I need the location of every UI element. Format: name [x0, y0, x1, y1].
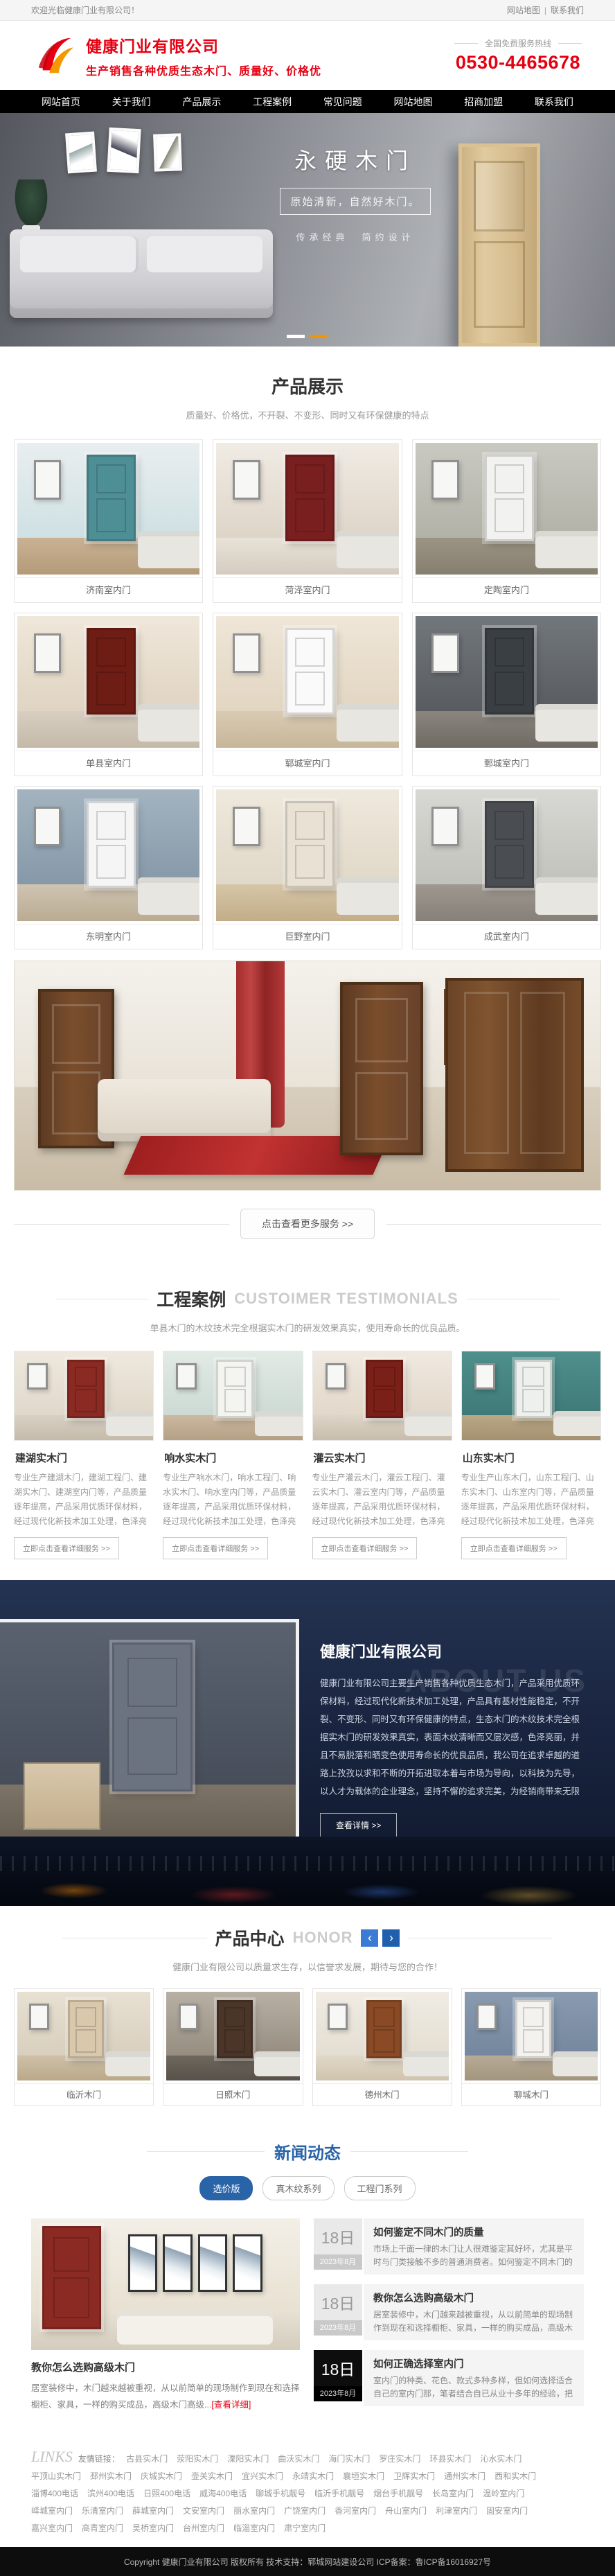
contact-link[interactable]: 联系我们: [551, 6, 584, 15]
product-name: 鄄城室内门: [413, 751, 600, 776]
news-body: 如何正确选择室内门 室内门的种类、花色、款式多种多样，但如何选择适合自己的室内门…: [364, 2350, 584, 2406]
copyright-bar: Copyright 健康门业有限公司 版权所有 技术支持：郓城网站建设公司 IC…: [0, 2547, 615, 2576]
door-graphic: [87, 628, 136, 715]
friend-link[interactable]: 邳州实木门: [90, 2471, 132, 2481]
wall-art-decor: [27, 1363, 48, 1390]
plant-decor: [12, 179, 50, 231]
case-description: 专业生产灌云木门，灌云工程门、灌云实木门、灌云室内门等，产品质量逐年提高，产品采…: [312, 1471, 452, 1529]
sofa-graphic: [337, 531, 399, 568]
case-image: [312, 1351, 452, 1441]
door-graphic: [68, 2000, 104, 2058]
door-graphic: [285, 801, 335, 888]
view-more-button[interactable]: 点击查看更多服务 >>: [240, 1209, 375, 1239]
sofa-graphic: [553, 2051, 598, 2076]
carousel-arrows: ‹ ›: [361, 1929, 400, 1947]
wall-art-decor: [163, 2234, 193, 2293]
wall-art-decor: [65, 132, 97, 174]
door-graphic: [42, 2226, 101, 2329]
news-content: 教你怎么选购高级木门 居室装修中，木门越来越被重视，从以前简单的现场制作到现在和…: [31, 2218, 584, 2413]
wall-art-decor: [128, 2234, 158, 2293]
featured-news[interactable]: 教你怎么选购高级木门 居室装修中，木门越来越被重视，从以前简单的现场制作到现在和…: [31, 2218, 300, 2413]
nav-item[interactable]: 联系我们: [535, 95, 573, 109]
case-grid: 建湖实木门 专业生产建湖木门，建湖工程门、建湖实木门、建湖室内门等，产品质量逐年…: [14, 1351, 601, 1559]
case-detail-button[interactable]: 立即点击查看详细服务 >>: [312, 1537, 418, 1559]
sofa-graphic: [254, 2051, 299, 2076]
nav-item[interactable]: 网站地图: [394, 95, 433, 109]
product-image: [416, 616, 598, 748]
news-month: 2023年8月: [314, 2386, 362, 2401]
friend-link[interactable]: 庆城实木门: [141, 2471, 182, 2481]
product-image: [17, 1992, 150, 2080]
friend-link[interactable]: 古县实木门: [126, 2454, 168, 2464]
news-tab-active[interactable]: 选价版: [199, 2176, 253, 2200]
product-image: [416, 443, 598, 575]
product-image: [17, 443, 199, 575]
door-graphic: [485, 801, 534, 888]
door-graphic: [216, 1360, 253, 1418]
carousel-prev-button[interactable]: ‹: [361, 1929, 378, 1947]
logo: 健康门业有限公司 生产销售各种优质生态木门、质量好、价格优: [33, 33, 321, 78]
sofa-graphic: [403, 2051, 448, 2076]
case-title: 灌云实木门: [314, 1451, 451, 1465]
banner-dot[interactable]: [287, 335, 305, 338]
hotline-label: 全国免费服务热线: [454, 37, 582, 49]
company-slogan: 生产销售各种优质生态木门、质量好、价格优: [86, 62, 321, 78]
news-item-title[interactable]: 教你怎么选购高级木门: [373, 2290, 574, 2305]
wall-art-decor: [474, 1363, 495, 1390]
nav-item[interactable]: 常见问题: [323, 95, 362, 109]
nav-item[interactable]: 招商加盟: [464, 95, 503, 109]
honor-title: 产品中心: [215, 1925, 285, 1950]
about-title: 健康门业有限公司: [320, 1640, 586, 1662]
company-name: 健康门业有限公司: [86, 33, 321, 57]
door-graphic: [87, 455, 136, 541]
news-item-excerpt: 居室装修中，木门越来越被重视，从以前简单的现场制作到现在和选择橱柜、家具，一样的…: [373, 2308, 574, 2335]
friend-link[interactable]: 荥阳实木门: [177, 2454, 218, 2464]
featured-news-title[interactable]: 教你怎么选购高级木门: [31, 2360, 300, 2374]
sofa-graphic: [535, 704, 598, 741]
door-graphic: [340, 982, 423, 1155]
product-image: [316, 1992, 449, 2080]
topbar-divider: |: [544, 6, 546, 15]
products-title: 产品展示: [14, 373, 601, 398]
links-label-en: LINKS: [31, 2448, 73, 2465]
sofa-graphic: [98, 1079, 271, 1141]
product-name: 单县室内门: [15, 751, 202, 776]
product-grid: 济南室内门 菏泽室内门 定陶室内门 单县室内门 郓城室内门 鄄城室内门 东明室内…: [14, 439, 601, 949]
carousel-next-button[interactable]: ›: [382, 1929, 400, 1947]
honor-subtitle: 健康门业有限公司以质量求生存，以信誉求发展，期待与您的合作！: [14, 1960, 601, 1973]
news-tab[interactable]: 工程门系列: [344, 2176, 416, 2200]
friend-link[interactable]: 平顶山实木门: [31, 2471, 81, 2481]
product-card[interactable]: 单县室内门: [14, 613, 203, 776]
nav-item[interactable]: 关于我们: [112, 95, 151, 109]
friend-link[interactable]: 淄博400电话: [31, 2489, 78, 2498]
sitemap-link[interactable]: 网站地图: [507, 6, 540, 15]
friend-link[interactable]: 西和实木门: [494, 2471, 536, 2481]
friend-link[interactable]: 烟台手机靓号: [373, 2489, 423, 2498]
wall-art-decor: [198, 2234, 228, 2293]
product-name: 菏泽室内门: [213, 577, 401, 602]
wall-art-decor: [34, 633, 61, 673]
door-graphic: [285, 628, 335, 715]
wall-art-decor: [476, 2004, 497, 2030]
cabinet-graphic: [24, 1762, 100, 1830]
friend-link[interactable]: 峄城室内门: [31, 2506, 73, 2516]
banner-subtitle: 原始清新，自然好木门。: [280, 188, 430, 215]
door-graphic: [366, 1360, 403, 1418]
product-image: [17, 616, 199, 748]
friend-link[interactable]: 文安室内门: [183, 2506, 224, 2516]
cases-title: 工程案例: [157, 1286, 226, 1311]
wall-art-decor: [326, 1363, 346, 1390]
sofa-graphic: [337, 704, 399, 741]
friend-link[interactable]: 环县实木门: [429, 2454, 471, 2464]
news-date: 18日 2023年8月: [314, 2350, 362, 2406]
friend-link[interactable]: 卫辉实木门: [393, 2471, 435, 2481]
read-more-link[interactable]: [查看详细]: [211, 2400, 251, 2410]
wall-art-decor: [328, 2004, 348, 2030]
product-card[interactable]: 成武室内门: [412, 786, 601, 949]
cases-title-row: 工程案例 CUSTOIMER TESTIMONIALS: [14, 1286, 601, 1311]
friend-link[interactable]: 台州室内门: [183, 2523, 224, 2533]
hero-banner: 永硬木门 原始清新，自然好木门。 传承经典 简约设计: [0, 113, 615, 347]
sofa-graphic: [138, 877, 200, 914]
friend-link[interactable]: 溧阳实木门: [227, 2454, 269, 2464]
friend-link[interactable]: 肃宁室内门: [284, 2523, 326, 2533]
friend-link[interactable]: 固安室内门: [486, 2506, 528, 2516]
products-subtitle: 质量好、价格优，不开裂、不变形、同时又有环保健康的特点: [14, 408, 601, 421]
product-name: 成武室内门: [413, 924, 600, 949]
friend-link[interactable]: 乐清室内门: [82, 2506, 123, 2516]
product-card[interactable]: 日照木门: [163, 1988, 303, 2106]
wall-art-decor: [153, 133, 182, 171]
product-card[interactable]: 鄄城室内门: [412, 613, 601, 776]
hotline-block: 全国免费服务热线 0530-4465678: [454, 37, 582, 73]
friend-link[interactable]: 壶关实木门: [191, 2471, 233, 2481]
case-description: 专业生产响水木门，响水工程门、响水实木门、响水室内门等，产品质量逐年提高，产品采…: [163, 1471, 303, 1529]
case-title: 建湖实木门: [15, 1451, 152, 1465]
friend-link[interactable]: 舟山室内门: [385, 2506, 427, 2516]
door-graphic: [485, 455, 534, 541]
friend-link[interactable]: 利津室内门: [436, 2506, 477, 2516]
friend-link[interactable]: 罗庄实木门: [379, 2454, 420, 2464]
friend-link[interactable]: 临沂手机靓号: [314, 2489, 364, 2498]
wall-art-decor: [233, 460, 260, 500]
friend-link[interactable]: 日照400电话: [143, 2489, 190, 2498]
wall-art-decor: [34, 807, 61, 846]
friend-link[interactable]: 海门实木门: [328, 2454, 370, 2464]
product-name: 德州木门: [313, 2083, 452, 2105]
banner-tagline: 传承经典 简约设计: [276, 230, 435, 243]
topbar-links: 网站地图|联系我们: [507, 4, 584, 16]
product-image: [416, 789, 598, 921]
product-card[interactable]: 定陶室内门: [412, 439, 601, 603]
door-graphic: [366, 2000, 402, 2058]
case-image: [163, 1351, 303, 1441]
wall-art-decor: [29, 2004, 49, 2030]
news-tab[interactable]: 真木纹系列: [262, 2176, 334, 2200]
case-title: 山东实木门: [463, 1451, 600, 1465]
friend-link[interactable]: 嘉兴室内门: [31, 2523, 73, 2533]
news-item[interactable]: 18日 2023年8月 如何鉴定不同木门的质量 市场上千面一律的木门让人很难鉴定…: [314, 2218, 584, 2275]
friend-link[interactable]: 通州实木门: [444, 2471, 485, 2481]
case-detail-button[interactable]: 立即点击查看详细服务 >>: [14, 1537, 119, 1559]
cases-section: 工程案例 CUSTOIMER TESTIMONIALS 单县木门的木纹技术完全根…: [0, 1263, 615, 1580]
sofa-graphic: [117, 2311, 273, 2345]
product-name: 东明室内门: [15, 924, 202, 949]
friend-links: LINKS友情链接： 古县实木门荥阳实木门溧阳实木门曲沃实木门海门实木门罗庄实木…: [0, 2434, 615, 2547]
friend-link[interactable]: 温岭室内门: [483, 2489, 524, 2498]
case-card: 建湖实木门 专业生产建湖木门，建湖工程门、建湖实木门、建湖室内门等，产品质量逐年…: [14, 1351, 154, 1559]
news-item-excerpt: 室内门的种类、花色、款式多种多样，但如何选择适合自己的室内门那，笔者结合自已从业…: [373, 2374, 574, 2401]
case-card: 山东实木门 专业生产山东木门，山东工程门、山东实木门、山东室内门等，产品质量逐年…: [461, 1351, 601, 1559]
logo-icon: [33, 34, 76, 77]
view-more-row: 点击查看更多服务 >>: [14, 1209, 601, 1239]
case-card: 灌云实木门 专业生产灌云木门，灌云工程门、灌云实木门、灌云室内门等，产品质量逐年…: [312, 1351, 452, 1559]
news-date: 18日 2023年8月: [314, 2284, 362, 2340]
wall-art-decor: [431, 460, 459, 500]
door-graphic: [67, 1360, 105, 1418]
cases-title-en: CUSTOIMER TESTIMONIALS: [234, 1290, 458, 1308]
about-section: ABOUT US 健康门业有限公司 健康门业有限公司主要生产销售各种优质生态木门…: [0, 1580, 615, 1906]
honor-section: 产品中心 HONOR ‹ › 健康门业有限公司以质量求生存，以信誉求发展，期待与…: [0, 1906, 615, 2124]
featured-news-image: [31, 2218, 300, 2350]
friend-link[interactable]: 香河室内门: [335, 2506, 376, 2516]
about-body: 健康门业有限公司 健康门业有限公司主要生产销售各种优质生态木门，产品采用优质环保…: [320, 1640, 586, 1837]
friend-link[interactable]: 高青室内门: [82, 2523, 123, 2533]
friend-link[interactable]: 聊城手机靓号: [256, 2489, 305, 2498]
news-tabs: 选价版 真木纹系列 工程门系列: [31, 2176, 584, 2200]
news-list: 18日 2023年8月 如何鉴定不同木门的质量 市场上千面一律的木门让人很难鉴定…: [314, 2218, 584, 2413]
wall-art-decor: [107, 128, 141, 173]
product-card[interactable]: 郓城室内门: [213, 613, 402, 776]
product-card[interactable]: 菏泽室内门: [213, 439, 402, 603]
wall-art-decor: [233, 2234, 262, 2293]
news-date: 18日 2023年8月: [314, 2218, 362, 2275]
wardrobe-graphic: [445, 978, 584, 1172]
news-item-title[interactable]: 如何鉴定不同木门的质量: [373, 2225, 574, 2239]
friend-link[interactable]: 滨州400电话: [87, 2489, 134, 2498]
product-card[interactable]: 巨野室内门: [213, 786, 402, 949]
sofa-graphic: [138, 531, 200, 568]
sofa-graphic: [535, 531, 598, 568]
friend-link[interactable]: 广饶室内门: [284, 2506, 326, 2516]
product-image: [465, 1992, 598, 2080]
hotline-phone-number: 0530-4465678: [454, 52, 582, 73]
door-graphic: [485, 628, 534, 715]
case-detail-button[interactable]: 立即点击查看详细服务 >>: [163, 1537, 268, 1559]
product-name: 郓城室内门: [213, 751, 401, 776]
sofa-graphic: [10, 229, 273, 318]
news-section: 新闻动态 选价版 真木纹系列 工程门系列 教你怎么选购高级木门 居室装修中，木门…: [0, 2124, 615, 2434]
sofa-graphic: [138, 704, 200, 741]
sofa-graphic: [105, 2051, 150, 2076]
product-name: 巨野室内门: [213, 924, 401, 949]
news-title-row: 新闻动态: [31, 2139, 584, 2164]
product-image: [216, 616, 398, 748]
wall-art-decor: [176, 1363, 197, 1390]
featured-news-excerpt: 居室装修中，木门越来越被重视，从以前简单的现场制作到现在和选择橱柜、家具，一样的…: [31, 2380, 300, 2413]
site-header: 健康门业有限公司 生产销售各种优质生态木门、质量好、价格优 全国免费服务热线 0…: [0, 21, 615, 90]
news-item-title[interactable]: 如何正确选择室内门: [373, 2356, 574, 2371]
door-graphic: [217, 2000, 253, 2058]
friend-link[interactable]: 曲沃实木门: [278, 2454, 319, 2464]
sofa-graphic: [553, 1411, 601, 1436]
product-image: [216, 443, 398, 575]
showcase-image: [14, 961, 601, 1191]
news-item[interactable]: 18日 2023年8月 如何正确选择室内门 室内门的种类、花色、款式多种多样，但…: [314, 2350, 584, 2406]
wall-art-decor: [431, 633, 459, 673]
friend-link[interactable]: 威海400电话: [199, 2489, 247, 2498]
links-label: 友情链接：: [78, 2454, 120, 2464]
door-graphic: [458, 143, 540, 347]
sofa-graphic: [255, 1411, 303, 1436]
banner-pagination: [0, 335, 615, 338]
wall-art-decor: [34, 460, 61, 500]
wall-art-decor: [179, 2004, 199, 2030]
product-name: 日照木门: [163, 2083, 302, 2105]
news-month: 2023年8月: [314, 2254, 362, 2270]
case-detail-button[interactable]: 立即点击查看详细服务 >>: [461, 1537, 567, 1559]
friend-link[interactable]: 长岛室内门: [432, 2489, 474, 2498]
sofa-graphic: [337, 877, 399, 914]
product-card[interactable]: 济南室内门: [14, 439, 203, 603]
friend-link[interactable]: 薛城室内门: [132, 2506, 174, 2516]
main-nav: 网站首页关于我们产品展示工程案例常见问题网站地图招商加盟联系我们: [0, 90, 615, 113]
nav-item[interactable]: 工程案例: [253, 95, 292, 109]
product-image: [166, 1992, 299, 2080]
product-name: 定陶室内门: [413, 577, 600, 602]
news-day: 18日: [314, 2284, 362, 2320]
friend-link[interactable]: 襄垣实木门: [343, 2471, 384, 2481]
honor-title-en: HONOR: [293, 1929, 353, 1947]
nav-item[interactable]: 网站首页: [42, 95, 80, 109]
logo-text: 健康门业有限公司 生产销售各种优质生态木门、质量好、价格优: [86, 33, 321, 78]
news-day: 18日: [314, 2350, 362, 2386]
case-card: 响水实木门 专业生产响水木门，响水工程门、响水实木门、响水室内门等，产品质量逐年…: [163, 1351, 303, 1559]
banner-dot-active[interactable]: [310, 335, 328, 338]
product-card[interactable]: 东明室内门: [14, 786, 203, 949]
news-item-excerpt: 市场上千面一律的木门让人很难鉴定其好坏，尤其是平时与门类接触不多的普通消费者。如…: [373, 2243, 574, 2269]
city-skyline-image: [0, 1837, 615, 1906]
news-item[interactable]: 18日 2023年8月 教你怎么选购高级木门 居室装修中，木门越来越被重视，从以…: [314, 2284, 584, 2340]
about-image: [0, 1619, 299, 1848]
about-detail-button[interactable]: 查看详情 >>: [320, 1813, 397, 1837]
product-card[interactable]: 聊城木门: [461, 1988, 601, 2106]
product-card[interactable]: 临沂木门: [14, 1988, 154, 2106]
sofa-graphic: [404, 1411, 452, 1436]
case-title: 响水实木门: [164, 1451, 301, 1465]
copyright-text: Copyright 健康门业有限公司 版权所有 技术支持：郓城网站建设公司 IC…: [124, 2556, 491, 2568]
news-day: 18日: [314, 2218, 362, 2254]
banner-title: 永硬木门: [276, 143, 435, 175]
friend-link[interactable]: 丽水室内门: [233, 2506, 275, 2516]
honor-grid: 临沂木门 日照木门 德州木门 聊城木门: [14, 1988, 601, 2106]
nav-item[interactable]: 产品展示: [182, 95, 221, 109]
news-title: 新闻动态: [274, 2139, 341, 2164]
case-description: 专业生产建湖木门，建湖工程门、建湖实木门、建湖室内门等，产品质量逐年提高，产品采…: [14, 1471, 154, 1529]
case-description: 专业生产山东木门，山东工程门、山东实木门、山东室内门等，产品质量逐年提高，产品采…: [461, 1471, 601, 1529]
wall-art-decor: [431, 807, 459, 846]
door-graphic: [515, 1360, 552, 1418]
door-graphic: [285, 455, 335, 541]
friend-link[interactable]: 宜兴实木门: [242, 2471, 283, 2481]
honor-title-row: 产品中心 HONOR ‹ ›: [14, 1925, 601, 1950]
cases-subtitle: 单县木门的木纹技术完全根据实木门的研发效果真实，使用寿命长的优良品质。: [14, 1321, 601, 1334]
about-paragraph: 健康门业有限公司主要生产销售各种优质生态木门，产品采用优质环保材料，经过现代化新…: [320, 1674, 586, 1802]
product-name: 临沂木门: [15, 2083, 153, 2105]
wall-art-decor: [233, 807, 260, 846]
about-image-scene: [0, 1622, 296, 1848]
case-image: [461, 1351, 601, 1441]
product-image: [17, 789, 199, 921]
friend-link[interactable]: 吴桥室内门: [132, 2523, 174, 2533]
door-graphic: [112, 1642, 192, 1791]
friend-link[interactable]: 永靖实木门: [292, 2471, 334, 2481]
sofa-graphic: [535, 877, 598, 914]
product-name: 聊城木门: [462, 2083, 600, 2105]
news-body: 教你怎么选购高级木门 居室装修中，木门越来越被重视，从以前简单的现场制作到现在和…: [364, 2284, 584, 2340]
news-month: 2023年8月: [314, 2320, 362, 2336]
product-card[interactable]: 德州木门: [312, 1988, 452, 2106]
door-graphic: [87, 801, 136, 888]
product-image: [216, 789, 398, 921]
news-body: 如何鉴定不同木门的质量 市场上千面一律的木门让人很难鉴定其好坏，尤其是平时与门类…: [364, 2218, 584, 2275]
products-section: 产品展示 质量好、价格优，不开裂、不变形、同时又有环保健康的特点 济南室内门 菏…: [0, 347, 615, 1239]
sofa-graphic: [106, 1411, 154, 1436]
friend-link[interactable]: 临淄室内门: [233, 2523, 275, 2533]
welcome-text: 欢迎光临健康门业有限公司！: [31, 4, 139, 16]
product-name: 济南室内门: [15, 577, 202, 602]
door-graphic: [515, 2000, 551, 2058]
banner-text: 永硬木门 原始清新，自然好木门。 传承经典 简约设计: [276, 143, 435, 243]
wall-art-decor: [233, 633, 260, 673]
case-image: [14, 1351, 154, 1441]
top-bar: 欢迎光临健康门业有限公司！ 网站地图|联系我们: [0, 0, 615, 21]
friend-link[interactable]: 沁水实木门: [480, 2454, 522, 2464]
